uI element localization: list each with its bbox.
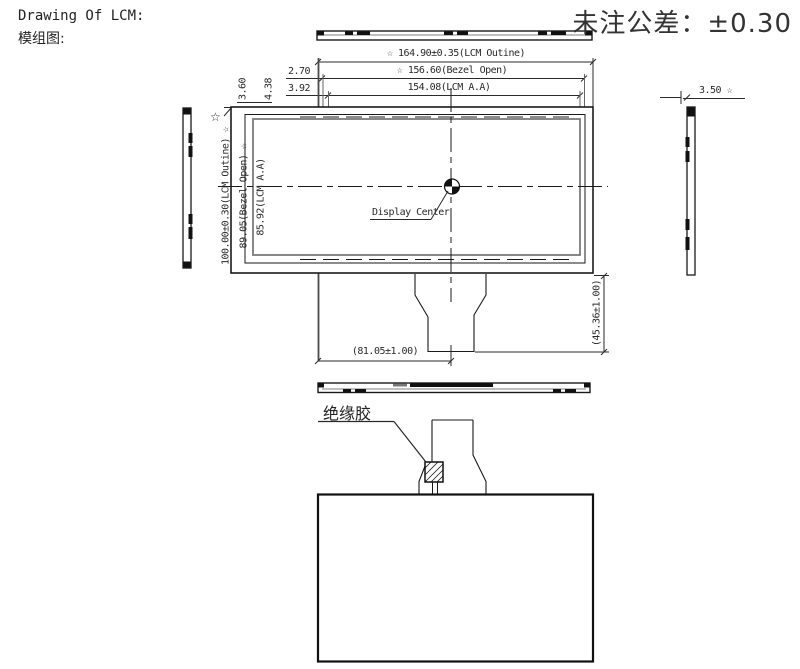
fpc-outline — [415, 274, 486, 352]
dim-top-gap-1: 2.70 — [288, 66, 310, 77]
star-icon: ☆ — [210, 110, 221, 124]
tab-mark — [565, 389, 576, 393]
tab-mark — [686, 237, 690, 250]
tab-mark — [551, 32, 566, 36]
tab-mark — [345, 32, 353, 36]
end-cap — [317, 31, 324, 36]
tab-mark — [538, 32, 547, 36]
right-profile-view — [660, 91, 745, 275]
tab-mark — [457, 32, 468, 36]
fpc-back-outline — [419, 420, 486, 494]
display-center-mark — [445, 179, 460, 194]
insulation-glue-patch — [425, 462, 443, 482]
tab-mark — [393, 384, 407, 387]
dim-lcm-outline-height: 100.00±0.30(LCM Outine) ☆ — [221, 127, 232, 265]
tab-mark — [189, 214, 193, 224]
sheet-title-en: Drawing Of LCM: — [18, 8, 144, 24]
dim-lcm-outline-width: ☆ 164.90±0.35(LCM Outine) — [387, 48, 525, 59]
dim-left-gap-1: 3.60 — [238, 78, 249, 100]
end-cap — [318, 383, 324, 388]
lcm-drawing-sheet: Drawing Of LCM: 模组图: 未注公差：±0.30 ☆ 164.90… — [0, 0, 800, 669]
dim-bezel-open-height: 89.05(Bezel Open) ☆ — [239, 144, 250, 249]
back-plate-rect — [318, 495, 593, 662]
back-view — [318, 420, 593, 662]
dim-thickness: 3.50 ☆ — [699, 85, 732, 96]
end-cap — [688, 108, 695, 117]
fpc-front — [415, 274, 486, 352]
dim-fpc-offset: (81.05±1.00) — [352, 346, 418, 357]
tab-mark — [686, 151, 690, 162]
tolerance-note: 未注公差：±0.30 — [572, 3, 792, 40]
fpc-bond-bar — [410, 383, 493, 387]
display-center-label: Display Center — [372, 207, 449, 218]
tab-mark — [553, 389, 561, 393]
tab-mark — [355, 389, 366, 393]
insulation-glue-label: 绝缘胶 — [323, 400, 371, 424]
tab-mark — [189, 227, 193, 239]
drawing-linework — [0, 0, 800, 669]
dim-bezel-open-width: ☆ 156.60(Bezel Open) — [397, 65, 507, 76]
lcm-outline-rect — [231, 107, 593, 273]
left-profile-outline — [183, 108, 191, 268]
end-cap — [184, 109, 191, 115]
tab-mark — [444, 32, 453, 36]
tab-mark — [357, 32, 370, 36]
dim-tick — [684, 95, 690, 101]
tab-mark — [189, 146, 193, 157]
front-view — [218, 88, 608, 302]
dim-active-area-height: 85.92(LCM A.A) — [256, 158, 267, 235]
tab-mark — [343, 389, 351, 393]
bottom-profile-view — [318, 383, 590, 393]
sheet-title-cn: 模组图: — [18, 28, 65, 48]
dim-active-area-width: 154.08(LCM A.A) — [408, 82, 491, 93]
end-cap — [584, 383, 590, 388]
top-profile-view — [317, 31, 592, 40]
fpc-length-dimension — [475, 273, 609, 355]
dim-fpc-length: (45.36±1.00) — [592, 280, 603, 346]
dim-left-gap-2: 4.38 — [264, 78, 275, 100]
tab-mark — [189, 133, 193, 143]
leader-line — [394, 422, 426, 462]
dim-top-gap-2: 3.92 — [288, 83, 310, 94]
end-cap — [184, 262, 191, 268]
left-profile-view — [183, 108, 193, 268]
tab-mark — [686, 137, 690, 147]
tab-mark — [686, 219, 690, 230]
